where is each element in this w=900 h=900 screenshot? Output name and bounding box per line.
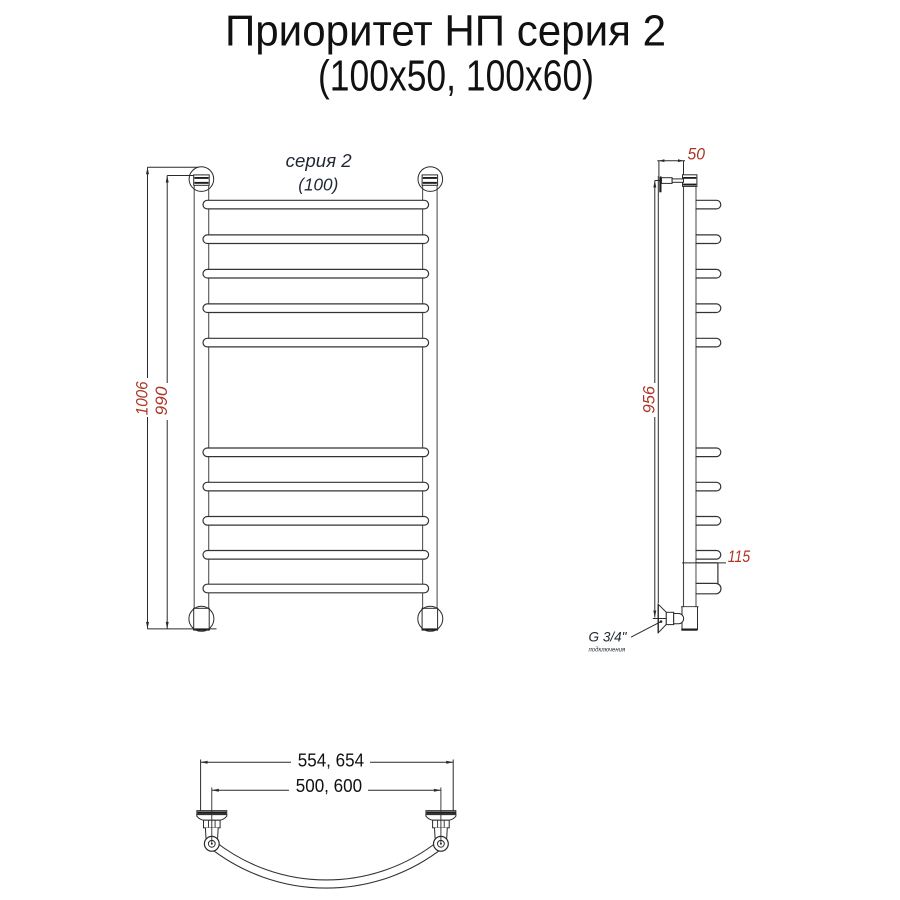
svg-text:(100х50, 100х60): (100х50, 100х60) bbox=[318, 53, 594, 101]
svg-text:115: 115 bbox=[728, 547, 751, 566]
svg-text:Приоритет НП серия 2: Приоритет НП серия 2 bbox=[225, 8, 666, 56]
svg-text:(100): (100) bbox=[298, 175, 338, 195]
svg-text:G 3/4": G 3/4" bbox=[589, 629, 628, 645]
svg-text:подключения: подключения bbox=[589, 648, 626, 654]
svg-text:серия 2: серия 2 bbox=[286, 151, 352, 171]
svg-text:956: 956 bbox=[640, 385, 659, 413]
svg-text:554, 654: 554, 654 bbox=[298, 750, 364, 771]
svg-text:1006: 1006 bbox=[132, 381, 151, 415]
svg-text:990: 990 bbox=[152, 386, 171, 416]
svg-text:500, 600: 500, 600 bbox=[296, 775, 362, 796]
svg-text:50: 50 bbox=[688, 145, 706, 164]
